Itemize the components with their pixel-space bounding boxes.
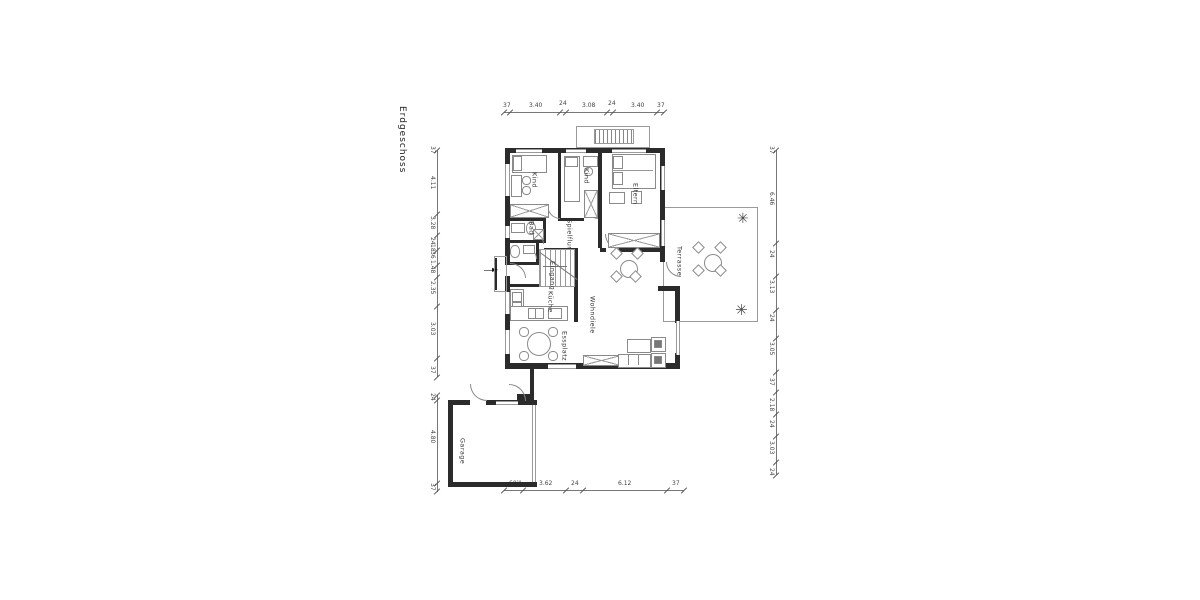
pillow — [565, 157, 578, 167]
kitchen-appliance — [512, 292, 522, 302]
window — [661, 220, 665, 246]
pillow — [513, 156, 522, 171]
dim-label: 3.05 — [768, 342, 774, 355]
chair — [522, 176, 531, 185]
garage-door — [532, 405, 536, 482]
kitchen-sink — [535, 308, 544, 319]
dim-label: 6.46 — [768, 192, 774, 205]
wall — [660, 254, 665, 262]
dining-table — [527, 332, 551, 356]
dim-label: 37 — [429, 146, 435, 154]
room-label-wohndiele: Wohndiele — [589, 296, 596, 334]
plant-icon: ✳ — [735, 303, 748, 318]
entry-porch — [494, 256, 507, 292]
window — [548, 364, 576, 369]
dim-label: 24 — [571, 481, 579, 487]
dim-label: 24 — [768, 468, 774, 476]
toilet — [510, 245, 520, 258]
tick — [681, 487, 687, 493]
room-label-kind2: Kind — [583, 168, 590, 184]
dim-label: 2.35 — [429, 281, 435, 294]
exterior-stair-steps — [594, 129, 634, 144]
room-label-bad: Bad — [528, 221, 535, 235]
wall-interior — [600, 248, 606, 252]
dim-label: 3.03 — [429, 322, 435, 335]
door-arc — [509, 384, 526, 401]
dim-label: 24 — [768, 420, 774, 428]
room-label-essplatz: Essplatz — [561, 331, 568, 361]
wardrobe — [608, 233, 660, 248]
dim-label: 37 — [429, 483, 435, 491]
garage-wall — [448, 482, 537, 487]
chair — [548, 351, 558, 361]
coffee-table — [627, 339, 651, 353]
dim-label: 3.40 — [529, 103, 542, 109]
dim-label: 3.40 — [631, 103, 644, 109]
tick — [661, 109, 667, 115]
dim-line-garage — [437, 395, 438, 492]
chair — [519, 351, 529, 361]
dim-label: 37 — [503, 103, 511, 109]
room-label-eingang: Eingang — [549, 261, 556, 290]
plan-title: Erdgeschoss — [397, 106, 406, 173]
dim-label: 4.80 — [429, 430, 435, 443]
chair — [519, 327, 529, 337]
dim-label: 3.62 — [539, 481, 552, 487]
dim-label: 37 — [657, 103, 665, 109]
plant-icon: ✳ — [737, 212, 749, 226]
dresser — [609, 192, 625, 204]
wardrobe — [584, 190, 598, 218]
desk — [583, 156, 598, 167]
dim-line-bottom — [504, 490, 684, 491]
pillow — [613, 172, 623, 185]
dim-label: 3.08 — [582, 103, 595, 109]
armchair-cushion — [654, 340, 662, 348]
dim-label: 1.48 — [429, 260, 435, 273]
dim-label: 37 — [429, 366, 435, 374]
window — [676, 321, 680, 355]
window — [505, 330, 510, 354]
pillow — [613, 156, 623, 169]
room-label-kueche: Küche — [547, 291, 554, 313]
window — [566, 149, 586, 153]
room-label-garage: Garage — [459, 438, 466, 464]
dim-label: 24 — [608, 101, 616, 107]
window — [612, 149, 646, 153]
dim-label: 4.11 — [429, 176, 435, 189]
tick — [434, 374, 440, 380]
dim-line-top — [504, 112, 664, 113]
wall — [675, 353, 680, 368]
wall-interior — [598, 153, 602, 248]
sofa — [618, 354, 651, 368]
dim-label: 24 — [768, 250, 774, 258]
sink — [511, 223, 525, 233]
dim-label: 24 — [768, 314, 774, 322]
dim-label: 24 — [429, 393, 435, 401]
dim-label: 6.12 — [618, 481, 631, 487]
floorplan-page: Erdgeschoss 37 3.40 24 3.08 24 3.40 37 3… — [0, 0, 1200, 600]
dim-label: 3.13 — [768, 280, 774, 293]
bed-divider — [613, 170, 653, 171]
window — [496, 401, 518, 405]
sideboard — [583, 355, 620, 366]
door-arc — [510, 263, 526, 278]
wardrobe — [510, 204, 549, 218]
dim-label: 24 — [559, 101, 567, 107]
armchair-cushion — [654, 356, 662, 364]
dim-label: 2.18 — [768, 398, 774, 411]
desk — [511, 175, 522, 197]
window — [505, 164, 510, 196]
dim-label: 37 — [672, 481, 680, 487]
door-arc — [470, 384, 487, 401]
garage-wall — [448, 400, 453, 487]
dim-label: 37 — [768, 378, 774, 386]
wall-interior — [508, 284, 540, 287]
room-label-eltern: Eltern — [632, 183, 639, 205]
sofa-divider — [638, 355, 639, 365]
chair — [522, 186, 531, 195]
window — [505, 226, 510, 238]
window — [516, 149, 542, 153]
sofa-divider — [628, 355, 629, 365]
dim-label: 3.03 — [768, 441, 774, 454]
room-label-kind1: Kind — [531, 172, 538, 188]
garage-wall — [448, 400, 470, 405]
dim-label: 3.28 — [429, 216, 435, 229]
room-label-spielflur: Spielflur — [566, 219, 573, 249]
window — [661, 166, 665, 190]
wall-interior — [508, 218, 546, 221]
dim-label: 37 — [768, 146, 774, 154]
dim-label: 36 — [429, 251, 435, 259]
wall — [675, 291, 680, 323]
sink — [523, 245, 535, 254]
chair — [548, 327, 558, 337]
dim-line-right — [776, 150, 777, 475]
